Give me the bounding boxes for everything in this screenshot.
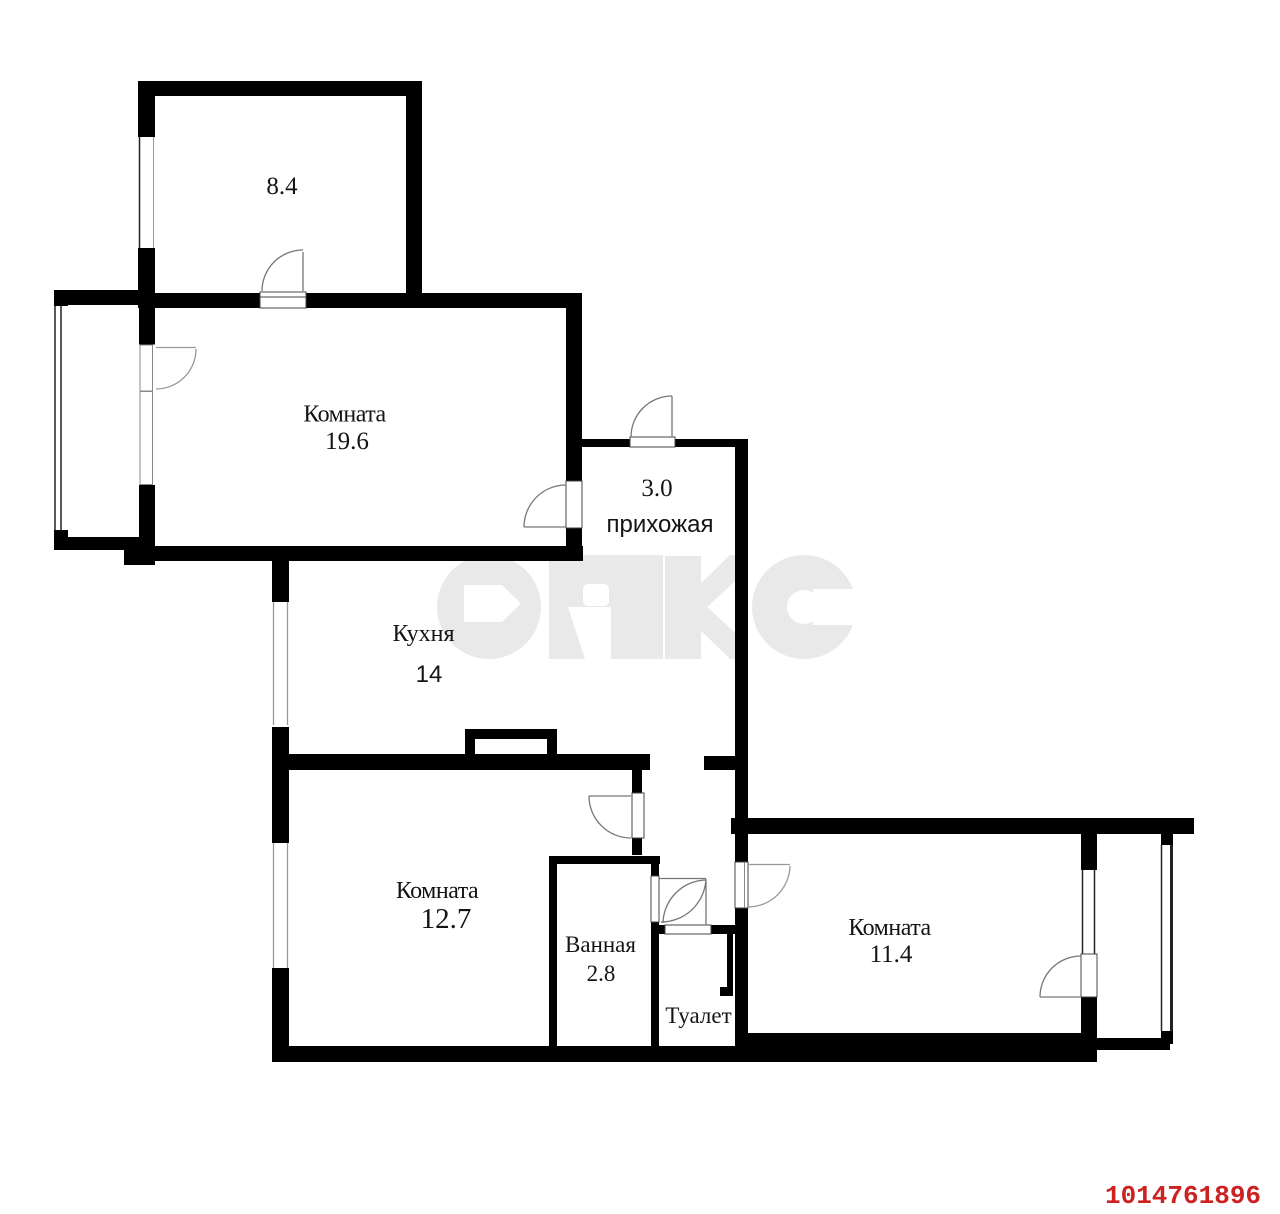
svg-text:1014761896: 1014761896 <box>1105 1181 1261 1211</box>
svg-text:2.8: 2.8 <box>587 961 616 986</box>
svg-text:Кухня: Кухня <box>392 621 454 647</box>
svg-text:14: 14 <box>416 661 443 688</box>
svg-text:11.4: 11.4 <box>870 941 913 968</box>
svg-text:Комната: Комната <box>848 915 931 941</box>
svg-text:3.0: 3.0 <box>641 475 672 502</box>
svg-text:Комната: Комната <box>303 402 386 428</box>
svg-text:8.4: 8.4 <box>266 173 298 200</box>
svg-text:Ванная: Ванная <box>565 932 636 957</box>
svg-text:Комната: Комната <box>396 878 479 904</box>
svg-text:12.7: 12.7 <box>421 903 472 935</box>
svg-text:Туалет: Туалет <box>665 1003 731 1028</box>
svg-text:прихожая: прихожая <box>607 511 714 538</box>
svg-text:19.6: 19.6 <box>325 428 369 455</box>
